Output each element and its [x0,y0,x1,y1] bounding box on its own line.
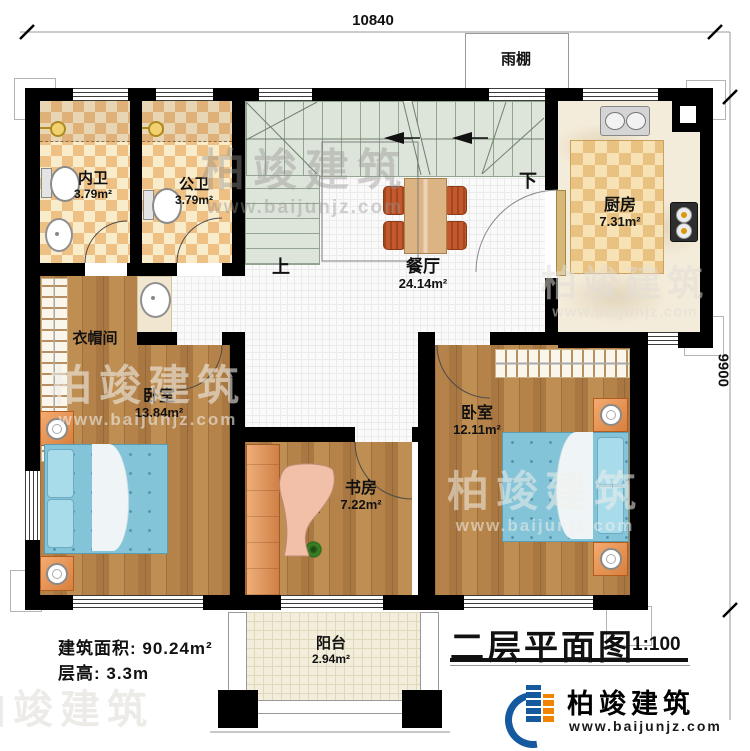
stair-down-label: 下 [519,172,537,192]
lamp-icon [46,418,68,440]
wall-segment [545,101,558,190]
window [463,595,595,610]
dimension-tick [723,603,737,617]
canopy-label: 雨棚 [501,52,531,69]
brand-logo: 柏竣建筑 www.baijunjz.com [505,680,750,742]
wall-segment [232,101,245,263]
pillow-icon [597,437,624,485]
window [582,88,660,101]
wall-segment [630,332,648,610]
pillow-icon [597,486,624,534]
room-area-study: 7.22m² [340,498,381,512]
wall-segment [128,88,155,101]
room-area-public-bath: 3.79m² [175,194,213,207]
room-label-study: 书房 [345,480,377,498]
wall-segment [545,88,582,101]
wall-segment [127,263,177,276]
window [258,88,314,101]
wall-segment [213,88,258,101]
room-area-bedroom-right: 12.11m² [453,423,501,437]
floor-plan: 10840 9900 雨棚 内卫 3.79m² 公卫 3.79m² 厨房 7.3… [0,0,750,751]
dimension-right-label: 9900 [714,354,731,387]
window [25,470,40,542]
bed-sheet [556,432,593,539]
pedestal-sink-icon [45,218,73,252]
nightstand-icon [593,398,628,432]
room-area-dining: 24.14m² [399,277,447,291]
wall-segment [245,427,355,442]
nightstand-icon [40,411,74,446]
wall-segment [412,427,418,442]
stove-burner [676,207,692,223]
nightstand-icon [593,542,628,576]
dining-chair [383,186,406,215]
wall-segment [312,88,488,101]
room-label-balcony: 阳台 [316,636,346,653]
room-label-cloakroom: 衣帽间 [72,331,117,348]
pillow-icon [47,499,74,548]
room-label-kitchen: 厨房 [604,197,636,215]
lamp-icon [600,548,622,570]
plan-scale: 1:100 [632,634,681,656]
window [72,595,205,610]
kitchen-door-leaf [556,190,566,276]
watermark-brand: 柏竣建筑 [0,687,154,733]
room-label-bedroom-left: 卧室 [143,388,175,406]
flue-opening [680,106,696,123]
window [155,88,215,101]
sink-drain [55,232,59,236]
wall-segment [418,332,435,610]
basin-drain [151,296,155,300]
title-underline-thin [450,665,690,666]
note-building-area: 建筑面积: 90.24m² [58,634,213,659]
room-area-balcony: 2.94m² [312,653,350,666]
watermark: 柏竣建筑 [0,687,154,733]
logo-building-orange [543,694,554,722]
balcony-ground-line [210,731,450,733]
wash-basin-icon [140,282,171,318]
note-floor-height: 层高: 3.3m [58,659,149,684]
logo-building-blue [526,685,541,722]
brand-logo-icon [505,682,561,740]
dining-chair [383,221,406,250]
dimension-tick [20,25,34,39]
room-area-bedroom-left: 13.84m² [135,406,183,420]
wall-segment [545,278,558,332]
sink-bowl [605,112,625,130]
nightstand-icon [40,556,74,591]
balcony-pillar-left [218,690,258,728]
brand-name: 柏竣建筑 [567,682,695,721]
study-cabinet-icon [246,444,280,596]
room-label-bedroom-right: 卧室 [461,405,493,423]
room-label-public-bath: 公卫 [179,177,209,194]
pillow-icon [47,449,74,498]
plant-icon [305,541,322,558]
room-area-inner-bath: 3.79m² [74,188,112,201]
wall-segment [137,332,177,345]
computer-monitor-icon [290,493,320,515]
wall-segment [222,263,245,276]
lamp-icon [600,404,622,426]
wall-segment [490,332,630,345]
balcony-door-glazing [280,595,385,610]
wall-segment [130,101,142,263]
stair-upper-flight [245,101,547,177]
wall-segment [25,263,85,276]
room-label-inner-bath: 内卫 [78,171,108,188]
stair-return-flight [245,175,320,265]
dimension-top-label: 10840 [352,13,394,30]
sink-bowl [626,112,646,130]
room-label-dining: 餐厅 [406,258,440,277]
dining-chair [444,186,467,215]
ceiling-light-icon [148,121,164,137]
lamp-icon [46,563,68,585]
dining-table-icon [404,178,447,254]
stair-up-label: 上 [272,258,290,278]
stove-burner [676,223,692,239]
wall-segment [230,345,245,610]
balcony-pillar-right [402,690,442,728]
brand-website: www.baijunjz.com [569,718,722,734]
wall-segment [222,332,245,345]
entry-door-glazing [488,88,547,101]
wall-segment [678,332,713,348]
room-area-kitchen: 7.31m² [599,215,640,229]
window [72,88,130,101]
ceiling-light-icon [50,121,66,137]
wardrobe-hangers-icon [495,349,630,378]
wall-segment [25,88,40,470]
title-underline [450,658,688,662]
dining-chair [444,221,467,250]
dimension-tick [708,25,722,39]
wall-segment [25,595,72,610]
